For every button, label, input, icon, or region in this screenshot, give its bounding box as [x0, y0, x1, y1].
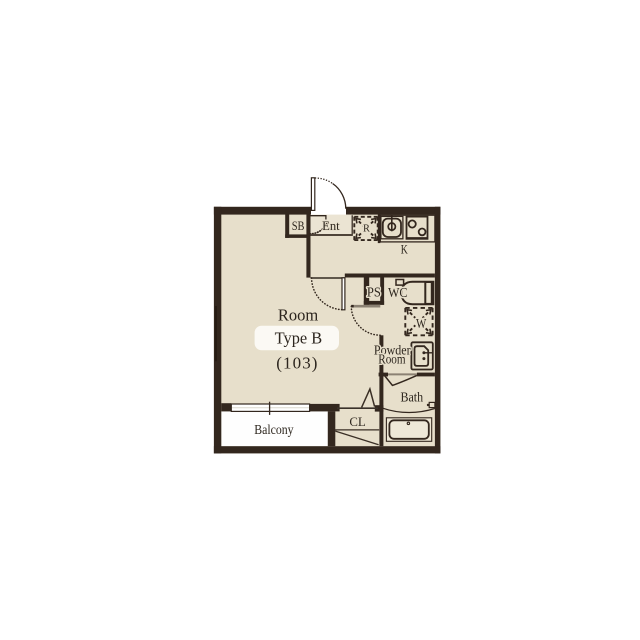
svg-text:Ent: Ent [322, 219, 340, 233]
svg-text:CL: CL [349, 415, 366, 429]
svg-text:Room: Room [278, 305, 319, 324]
svg-text:SB: SB [292, 218, 305, 233]
svg-text:Room: Room [378, 351, 405, 366]
svg-text:K: K [401, 243, 409, 257]
svg-text:R: R [363, 224, 371, 235]
svg-text:Bath: Bath [400, 390, 423, 405]
svg-text:(103): (103) [276, 354, 318, 373]
svg-text:W: W [416, 316, 427, 331]
svg-text:WC: WC [388, 285, 407, 300]
svg-text:Balcony: Balcony [254, 421, 294, 437]
svg-text:PS: PS [367, 284, 381, 300]
svg-text:Type B: Type B [275, 328, 322, 347]
